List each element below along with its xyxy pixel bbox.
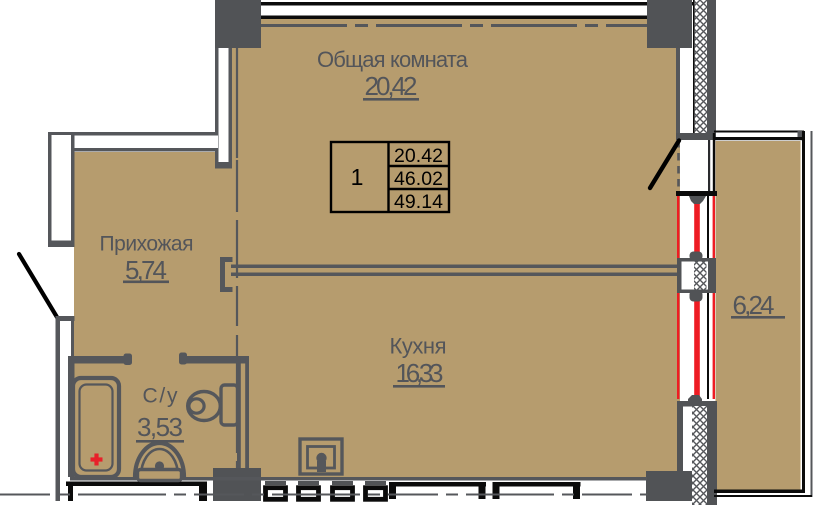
svg-text:46.02: 46.02 — [394, 168, 443, 190]
svg-text:16,33: 16,33 — [396, 358, 444, 388]
svg-text:Прихожая: Прихожая — [100, 233, 194, 256]
svg-text:20.42: 20.42 — [394, 145, 443, 167]
svg-text:Общая комната: Общая комната — [317, 47, 469, 72]
svg-text:1: 1 — [351, 164, 364, 190]
svg-text:Кухня: Кухня — [390, 334, 447, 359]
svg-text:49.14: 49.14 — [394, 191, 443, 213]
svg-text:20,42: 20,42 — [365, 71, 418, 101]
svg-text:6,24: 6,24 — [733, 290, 775, 320]
svg-text:3,53: 3,53 — [137, 412, 183, 442]
svg-text:С/у: С/у — [143, 385, 179, 408]
